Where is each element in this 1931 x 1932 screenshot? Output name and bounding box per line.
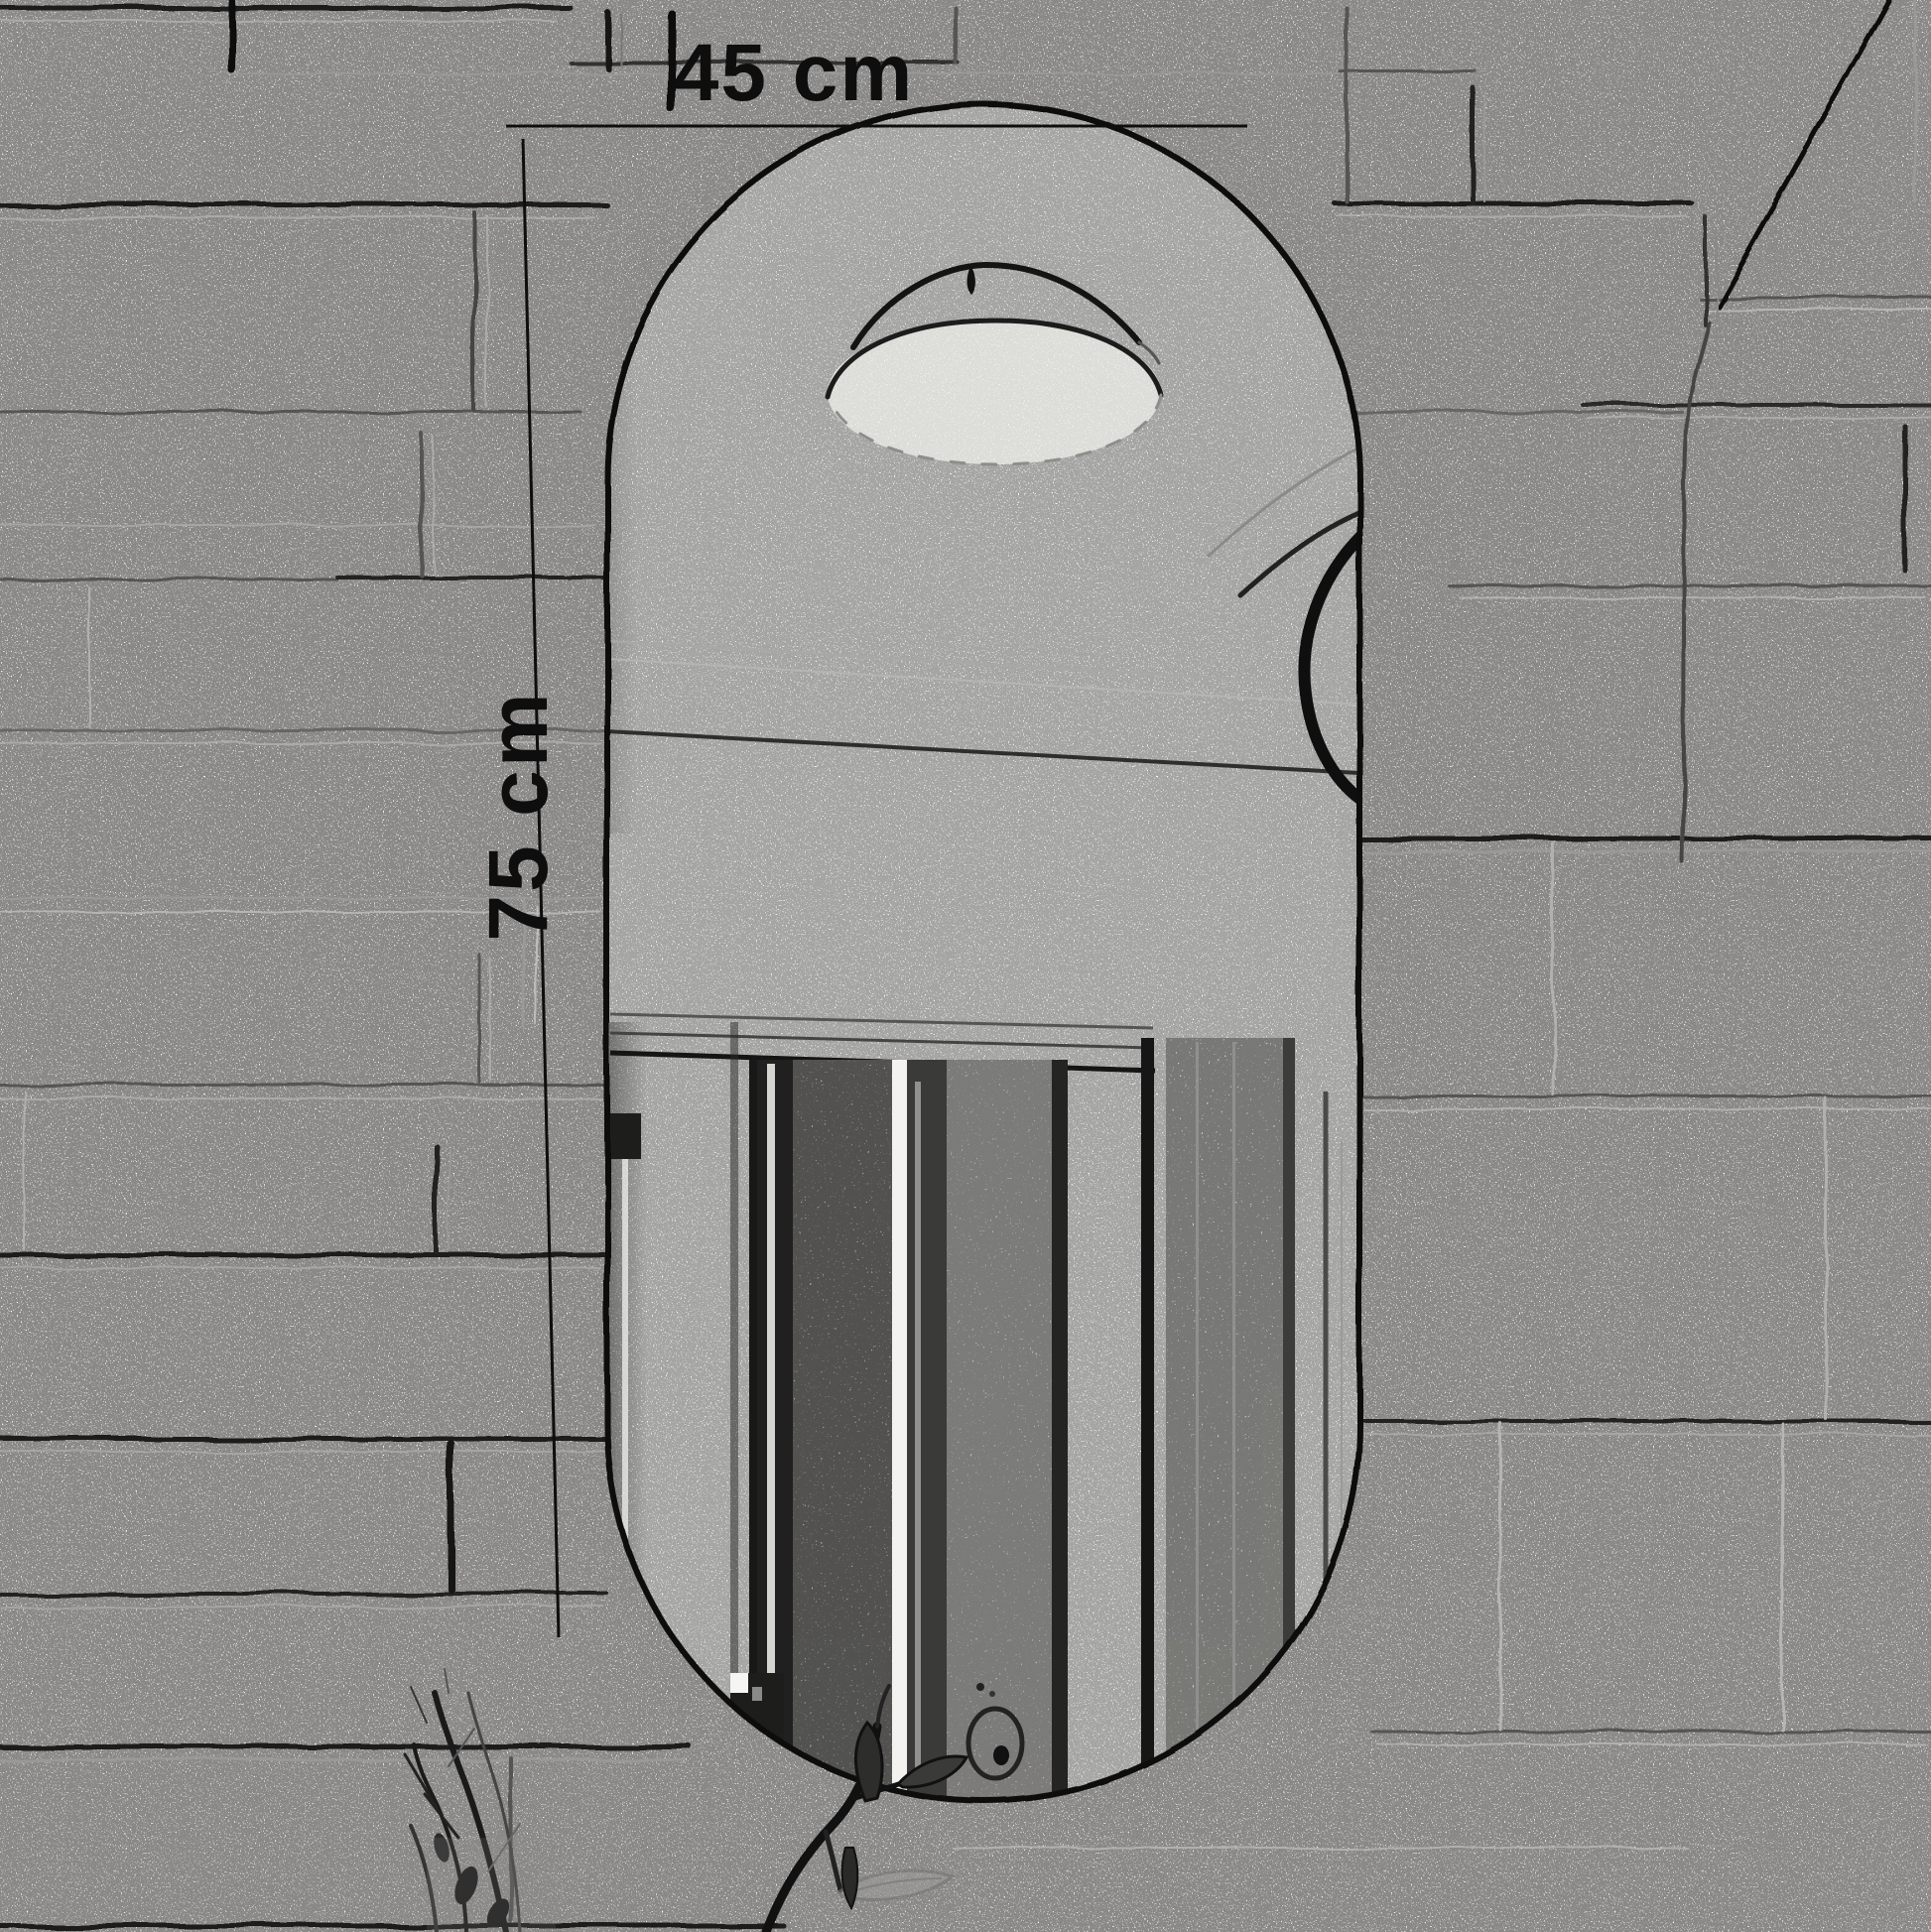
mirror (607, 104, 1361, 1814)
width-dimension-label: 45 cm (674, 28, 915, 118)
dimension-diagram: 45 cm 75 cm (0, 0, 1931, 1932)
door-step-notch-upper (607, 1113, 641, 1159)
sketch-canvas: 45 cm 75 cm (0, 0, 1931, 1932)
floor-wash (0, 1758, 714, 1932)
height-dimension-label: 75 cm (471, 690, 565, 941)
